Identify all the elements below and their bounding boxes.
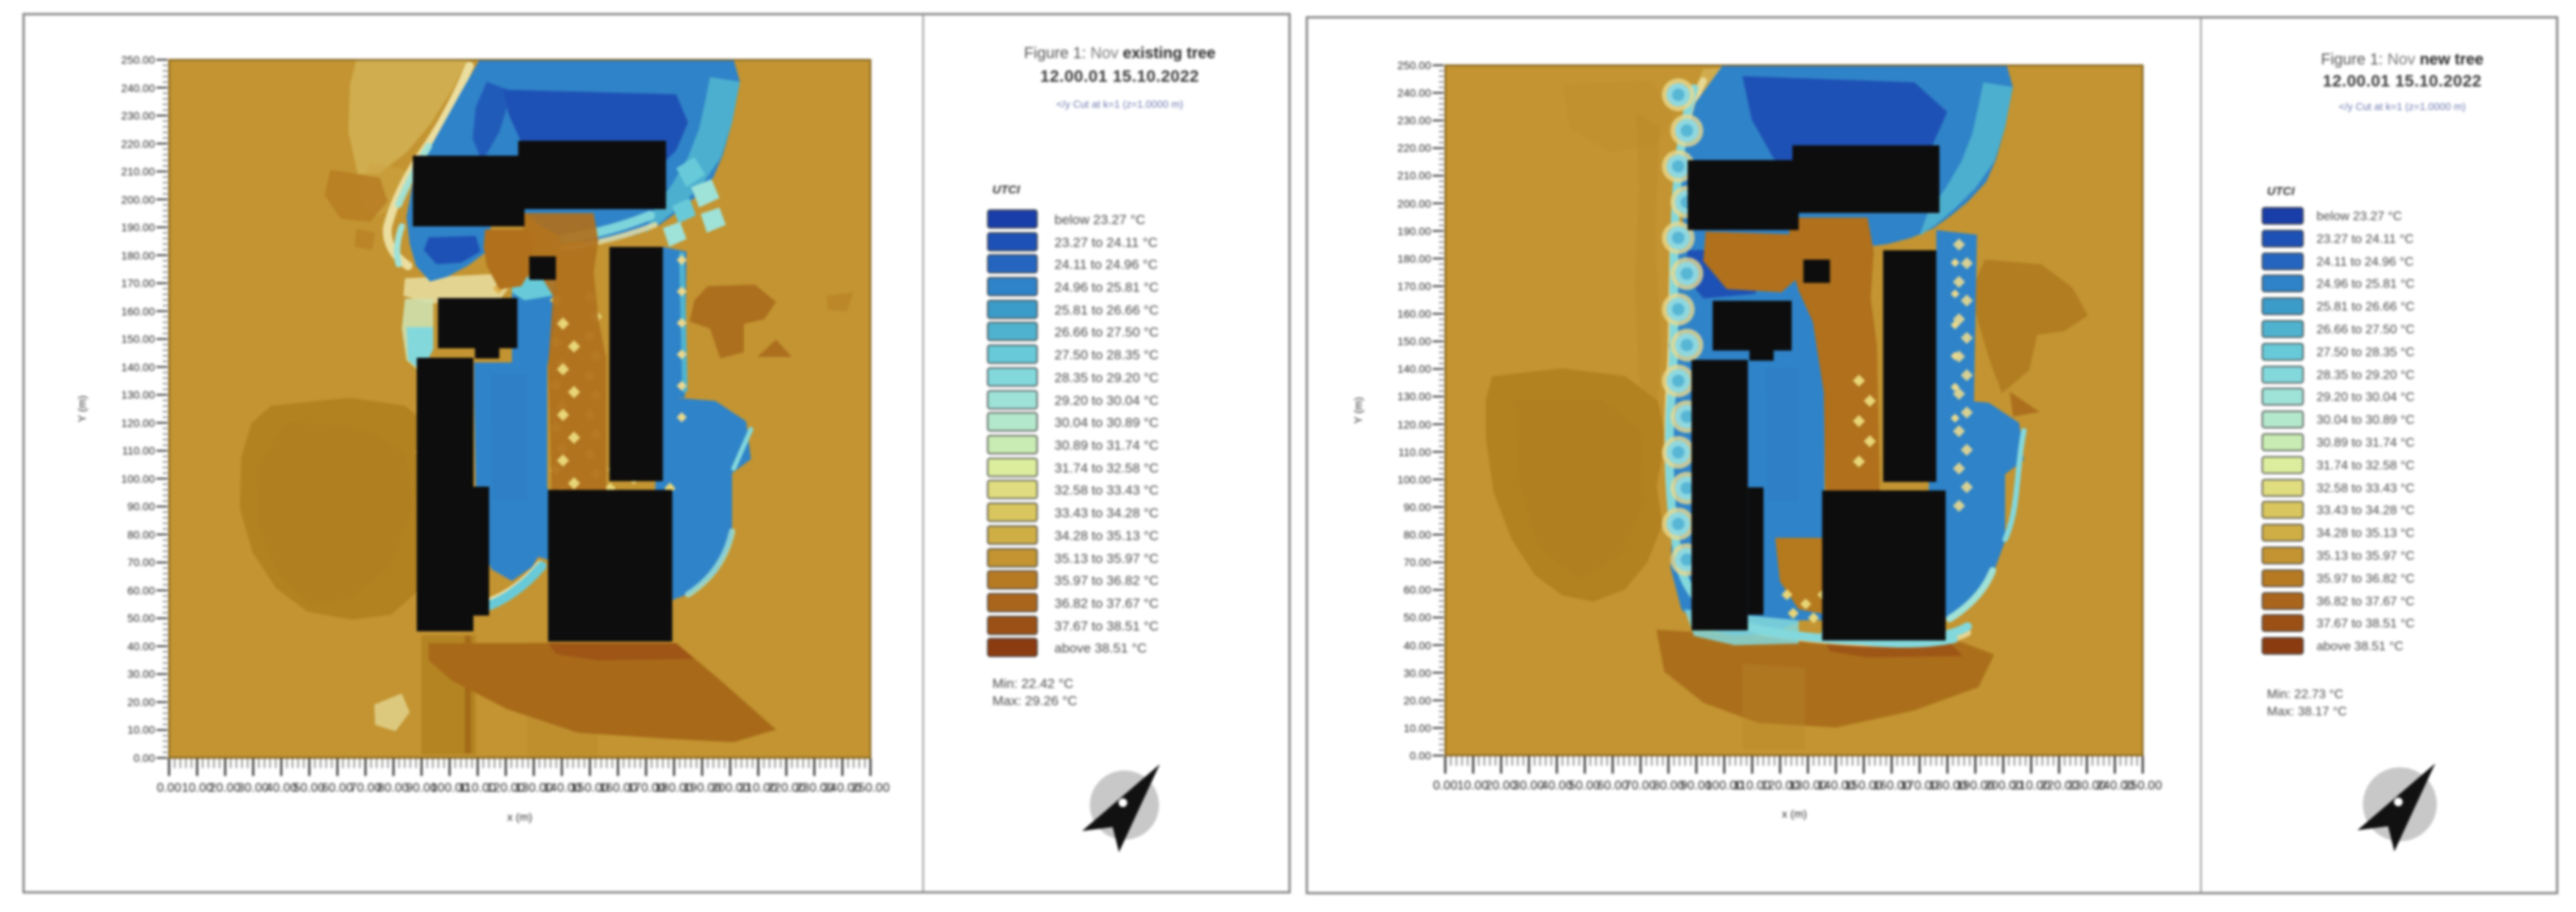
svg-text:0.00: 0.00 <box>134 752 155 764</box>
svg-text:80.00: 80.00 <box>127 528 155 541</box>
svg-text:Y (m): Y (m) <box>1352 397 1364 424</box>
svg-text:30.00: 30.00 <box>1404 667 1431 679</box>
svg-text:20.00: 20.00 <box>127 696 155 708</box>
svg-text:Min: 22.42 °C: Min: 22.42 °C <box>992 676 1073 691</box>
svg-text:210.00: 210.00 <box>1397 169 1431 182</box>
svg-text:37.67 to 38.51 °C: 37.67 to 38.51 °C <box>1054 619 1159 634</box>
svg-text:250.00: 250.00 <box>2124 779 2162 792</box>
svg-text:UTCI: UTCI <box>2267 185 2295 198</box>
svg-text:90.00: 90.00 <box>127 500 155 513</box>
svg-text:50.00: 50.00 <box>127 612 155 624</box>
svg-text:70.00: 70.00 <box>127 556 155 568</box>
svg-text:12.00.01 15.10.2022: 12.00.01 15.10.2022 <box>2323 72 2482 90</box>
svg-text:230.00: 230.00 <box>121 109 155 122</box>
svg-text:30.00: 30.00 <box>127 667 155 680</box>
svg-text:140.00: 140.00 <box>1397 362 1431 375</box>
svg-text:below 23.27 °C: below 23.27 °C <box>2317 210 2402 223</box>
svg-text:90.00: 90.00 <box>1404 501 1431 513</box>
svg-text:UTCI: UTCI <box>992 183 1021 197</box>
svg-text:Figure 1: Nov existing tree: Figure 1: Nov existing tree <box>1024 45 1215 62</box>
svg-text:24.11 to 24.96 °C: 24.11 to 24.96 °C <box>2317 256 2414 269</box>
svg-text:x (m): x (m) <box>507 811 532 823</box>
svg-text:110.00: 110.00 <box>1398 446 1431 458</box>
svg-text:Figure 1: Nov new tree: Figure 1: Nov new tree <box>2321 51 2484 68</box>
svg-text:0.00: 0.00 <box>1410 749 1431 762</box>
svg-text:30.04 to 30.89 °C: 30.04 to 30.89 °C <box>2317 414 2415 427</box>
svg-text:23.27 to 24.11 °C: 23.27 to 24.11 °C <box>2317 233 2414 246</box>
svg-text:250.00: 250.00 <box>1397 59 1431 72</box>
svg-text:190.00: 190.00 <box>121 221 155 234</box>
svg-text:</y Cut at k=1 (z=1.0000 m): </y Cut at k=1 (z=1.0000 m) <box>1056 98 1183 110</box>
svg-text:210.00: 210.00 <box>121 165 155 178</box>
svg-text:x (m): x (m) <box>1782 807 1807 820</box>
svg-text:250.00: 250.00 <box>852 781 890 795</box>
svg-text:30.00: 30.00 <box>1513 779 1544 792</box>
svg-text:35.13 to 35.97 °C: 35.13 to 35.97 °C <box>1054 551 1159 566</box>
svg-text:150.00: 150.00 <box>1397 335 1431 348</box>
svg-text:Min: 22.73 °C: Min: 22.73 °C <box>2267 688 2343 701</box>
svg-text:240.00: 240.00 <box>121 82 155 94</box>
svg-text:250.00: 250.00 <box>121 53 155 66</box>
svg-text:0.00: 0.00 <box>156 781 181 795</box>
svg-text:240.00: 240.00 <box>1397 86 1431 99</box>
svg-text:27.50 to 28.35 °C: 27.50 to 28.35 °C <box>2317 346 2415 359</box>
svg-text:130.00: 130.00 <box>1397 390 1431 403</box>
svg-text:28.35 to 29.20 °C: 28.35 to 29.20 °C <box>2317 369 2415 382</box>
svg-text:50.00: 50.00 <box>1569 779 1600 792</box>
svg-text:110.00: 110.00 <box>122 444 155 457</box>
svg-text:220.00: 220.00 <box>121 138 155 150</box>
svg-text:0.00: 0.00 <box>1433 779 1457 792</box>
svg-text:200.00: 200.00 <box>121 193 155 206</box>
svg-text:30.00: 30.00 <box>237 781 269 795</box>
svg-text:35.97 to 36.82 °C: 35.97 to 36.82 °C <box>1054 573 1159 588</box>
svg-text:130.00: 130.00 <box>121 388 155 401</box>
svg-text:below 23.27 °C: below 23.27 °C <box>1054 212 1145 227</box>
svg-text:</y Cut at k=1 (z=1.0000 m): </y Cut at k=1 (z=1.0000 m) <box>2339 101 2466 112</box>
svg-text:32.58 to 33.43 °C: 32.58 to 33.43 °C <box>1054 483 1159 498</box>
svg-text:25.81 to 26.66 °C: 25.81 to 26.66 °C <box>1054 303 1159 318</box>
svg-text:29.20 to 30.04 °C: 29.20 to 30.04 °C <box>1054 393 1159 408</box>
svg-text:24.11 to 24.96 °C: 24.11 to 24.96 °C <box>1054 257 1157 272</box>
svg-text:35.97 to 36.82 °C: 35.97 to 36.82 °C <box>2317 572 2415 586</box>
svg-text:100.00: 100.00 <box>1397 473 1431 486</box>
svg-text:20.00: 20.00 <box>1404 694 1431 707</box>
svg-text:80.00: 80.00 <box>1404 528 1431 541</box>
svg-text:27.50 to 28.35 °C: 27.50 to 28.35 °C <box>1054 348 1159 362</box>
svg-text:36.82 to 37.67 °C: 36.82 to 37.67 °C <box>1054 596 1159 611</box>
svg-text:10.00: 10.00 <box>1457 779 1489 792</box>
svg-text:230.00: 230.00 <box>1397 114 1431 127</box>
svg-text:above 38.51 °C: above 38.51 °C <box>2317 640 2403 653</box>
svg-text:160.00: 160.00 <box>121 305 155 318</box>
svg-text:26.66 to 27.50 °C: 26.66 to 27.50 °C <box>2317 323 2415 336</box>
svg-text:60.00: 60.00 <box>127 584 155 597</box>
svg-text:50.00: 50.00 <box>1404 611 1431 623</box>
svg-text:31.74 to 32.58 °C: 31.74 to 32.58 °C <box>2317 459 2415 473</box>
svg-text:35.13 to 35.97 °C: 35.13 to 35.97 °C <box>2317 550 2415 563</box>
svg-text:190.00: 190.00 <box>1397 225 1431 237</box>
svg-text:120.00: 120.00 <box>121 417 155 429</box>
svg-text:170.00: 170.00 <box>121 277 155 289</box>
svg-text:200.00: 200.00 <box>1397 197 1431 210</box>
svg-text:29.20 to 30.04 °C: 29.20 to 30.04 °C <box>2317 391 2415 404</box>
svg-text:40.00: 40.00 <box>127 640 155 653</box>
svg-text:70.00: 70.00 <box>1404 556 1431 568</box>
svg-text:24.96 to 25.81 °C: 24.96 to 25.81 °C <box>2317 278 2415 291</box>
svg-text:140.00: 140.00 <box>121 361 155 373</box>
svg-text:30.89 to 31.74 °C: 30.89 to 31.74 °C <box>1054 438 1159 453</box>
svg-text:Y (m): Y (m) <box>75 395 88 422</box>
svg-text:36.82 to 37.67 °C: 36.82 to 37.67 °C <box>2317 595 2415 609</box>
svg-text:24.96 to 25.81 °C: 24.96 to 25.81 °C <box>1054 280 1159 295</box>
svg-text:above 38.51 °C: above 38.51 °C <box>1054 641 1146 656</box>
svg-text:34.28 to 35.13 °C: 34.28 to 35.13 °C <box>1054 528 1159 543</box>
svg-text:31.74 to 32.58 °C: 31.74 to 32.58 °C <box>1054 461 1159 476</box>
svg-text:28.35 to 29.20 °C: 28.35 to 29.20 °C <box>1054 370 1159 385</box>
svg-text:26.66 to 27.50 °C: 26.66 to 27.50 °C <box>1054 325 1159 340</box>
svg-text:80.00: 80.00 <box>377 781 409 795</box>
svg-text:30.89 to 31.74 °C: 30.89 to 31.74 °C <box>2317 436 2415 450</box>
svg-text:150.00: 150.00 <box>121 333 155 345</box>
svg-text:10.00: 10.00 <box>127 723 155 736</box>
svg-text:Max: 29.26 °C: Max: 29.26 °C <box>992 693 1077 708</box>
svg-text:160.00: 160.00 <box>1397 307 1431 320</box>
svg-text:180.00: 180.00 <box>121 249 155 262</box>
svg-text:220.00: 220.00 <box>1397 142 1431 154</box>
svg-text:37.67 to 38.51 °C: 37.67 to 38.51 °C <box>2317 617 2415 631</box>
svg-text:60.00: 60.00 <box>322 781 353 795</box>
svg-text:20.00: 20.00 <box>209 781 241 795</box>
svg-text:Max: 38.17 °C: Max: 38.17 °C <box>2267 705 2347 719</box>
svg-text:40.00: 40.00 <box>1404 639 1431 652</box>
svg-text:50.00: 50.00 <box>293 781 325 795</box>
svg-text:34.28 to 35.13 °C: 34.28 to 35.13 °C <box>2317 527 2415 540</box>
svg-text:180.00: 180.00 <box>1397 252 1431 265</box>
svg-text:170.00: 170.00 <box>1397 280 1431 292</box>
svg-text:23.27 to 24.11 °C: 23.27 to 24.11 °C <box>1054 235 1157 250</box>
svg-text:32.58 to 33.43 °C: 32.58 to 33.43 °C <box>2317 482 2415 495</box>
svg-text:10.00: 10.00 <box>1404 722 1431 734</box>
svg-text:25.81 to 26.66 °C: 25.81 to 26.66 °C <box>2317 300 2415 314</box>
svg-text:100.00: 100.00 <box>121 473 155 485</box>
svg-text:60.00: 60.00 <box>1404 583 1431 596</box>
svg-text:12.00.01 15.10.2022: 12.00.01 15.10.2022 <box>1040 68 1199 86</box>
svg-text:120.00: 120.00 <box>1397 418 1431 431</box>
svg-text:70.00: 70.00 <box>1625 779 1656 792</box>
svg-text:33.43 to 34.28 °C: 33.43 to 34.28 °C <box>1054 506 1159 520</box>
svg-text:33.43 to 34.28 °C: 33.43 to 34.28 °C <box>2317 504 2415 517</box>
svg-text:30.04 to 30.89 °C: 30.04 to 30.89 °C <box>1054 415 1159 430</box>
